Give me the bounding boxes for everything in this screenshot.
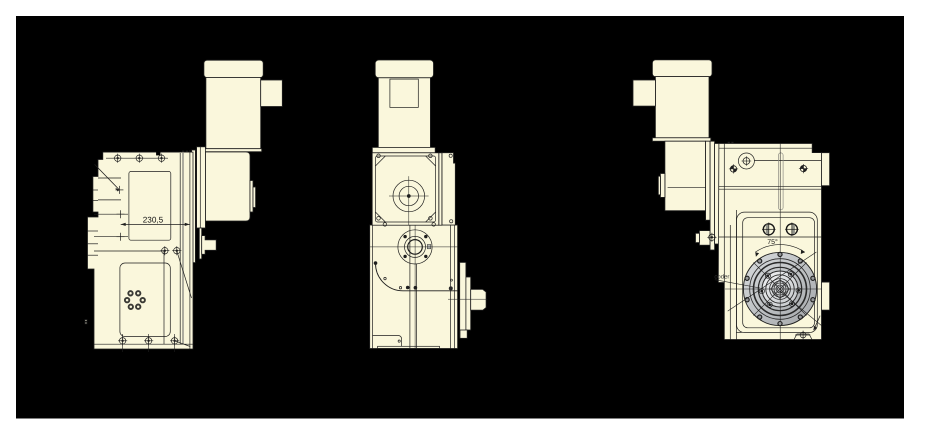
svg-text:230,5: 230,5 [143, 216, 164, 225]
svg-text:coder: coder [714, 274, 729, 281]
svg-text:75°: 75° [767, 239, 778, 246]
